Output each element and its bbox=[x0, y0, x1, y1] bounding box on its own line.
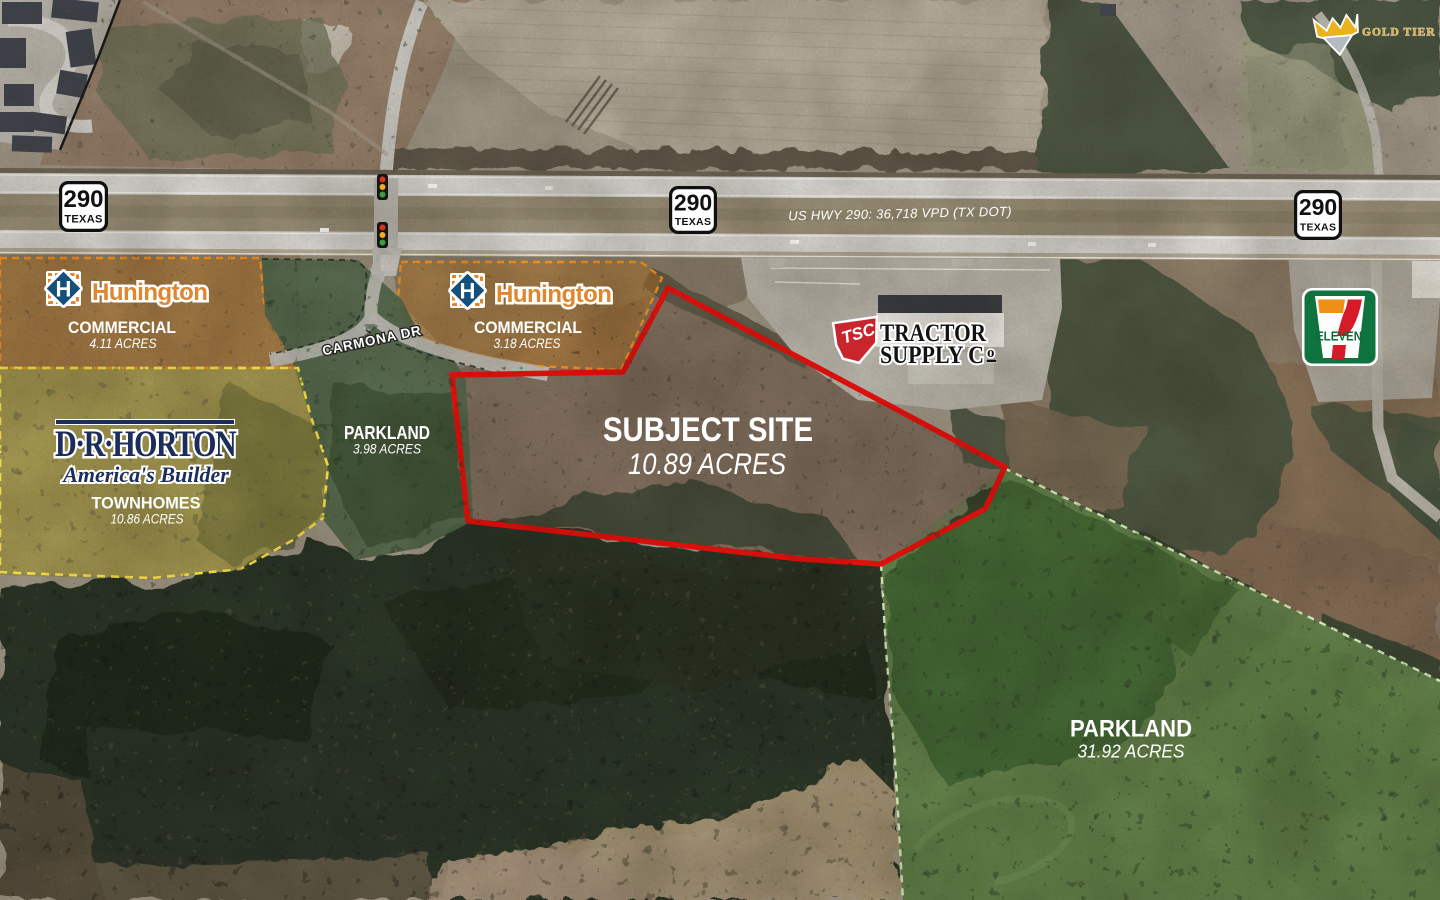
svg-text:TEXAS: TEXAS bbox=[675, 216, 712, 228]
svg-text:3.98 ACRES: 3.98 ACRES bbox=[353, 442, 421, 457]
svg-text:America's Builder: America's Builder bbox=[61, 462, 229, 487]
svg-text:ELEVEN: ELEVEN bbox=[1316, 329, 1362, 344]
svg-text:TOWNHOMES: TOWNHOMES bbox=[92, 494, 201, 513]
svg-text:PARKLAND: PARKLAND bbox=[344, 423, 430, 443]
svg-text:Hunington: Hunington bbox=[496, 281, 611, 308]
svg-text:COMMERCIAL: COMMERCIAL bbox=[474, 318, 582, 337]
svg-text:D·R·HORTON: D·R·HORTON bbox=[55, 424, 237, 465]
svg-text:290: 290 bbox=[63, 186, 103, 213]
svg-text:SUPPLY C: SUPPLY C bbox=[880, 342, 984, 369]
svg-text:4.11 ACRES: 4.11 ACRES bbox=[90, 336, 157, 351]
svg-text:Hunington: Hunington bbox=[92, 279, 207, 306]
svg-text:10.86 ACRES: 10.86 ACRES bbox=[111, 512, 184, 527]
svg-text:H: H bbox=[56, 277, 72, 302]
svg-text:COMMERCIAL: COMMERCIAL bbox=[68, 318, 176, 337]
svg-text:290: 290 bbox=[1299, 194, 1337, 220]
svg-text:GOLD TIER: GOLD TIER bbox=[1362, 27, 1436, 39]
svg-text:10.89 ACRES: 10.89 ACRES bbox=[628, 448, 786, 481]
svg-text:TEXAS: TEXAS bbox=[1300, 222, 1337, 234]
svg-text:31.92 ACRES: 31.92 ACRES bbox=[1078, 742, 1185, 762]
svg-text:o: o bbox=[987, 345, 995, 361]
svg-text:PARKLAND: PARKLAND bbox=[1070, 716, 1192, 743]
svg-text:3.18 ACRES: 3.18 ACRES bbox=[494, 336, 561, 351]
svg-text:TEXAS: TEXAS bbox=[64, 214, 102, 226]
svg-text:H: H bbox=[460, 279, 476, 304]
svg-text:SUBJECT SITE: SUBJECT SITE bbox=[603, 411, 813, 449]
svg-text:290: 290 bbox=[674, 190, 712, 216]
